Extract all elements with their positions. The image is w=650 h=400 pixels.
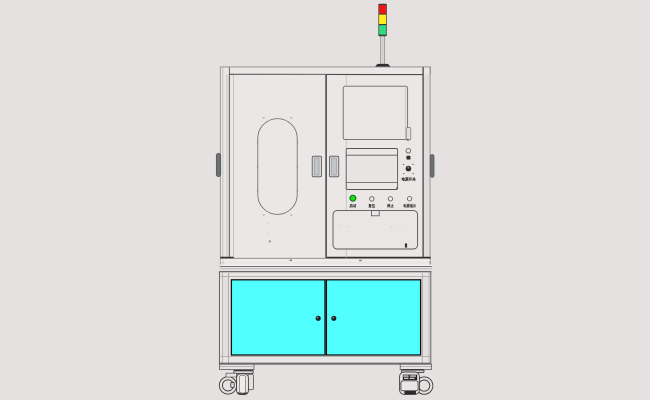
svg-text:复位: 复位	[367, 203, 375, 208]
svg-text:电源开关: 电源开关	[401, 176, 416, 181]
svg-text:启动: 启动	[350, 203, 357, 208]
svg-text:电源指示: 电源指示	[403, 203, 417, 208]
svg-text:停止: 停止	[387, 203, 394, 208]
